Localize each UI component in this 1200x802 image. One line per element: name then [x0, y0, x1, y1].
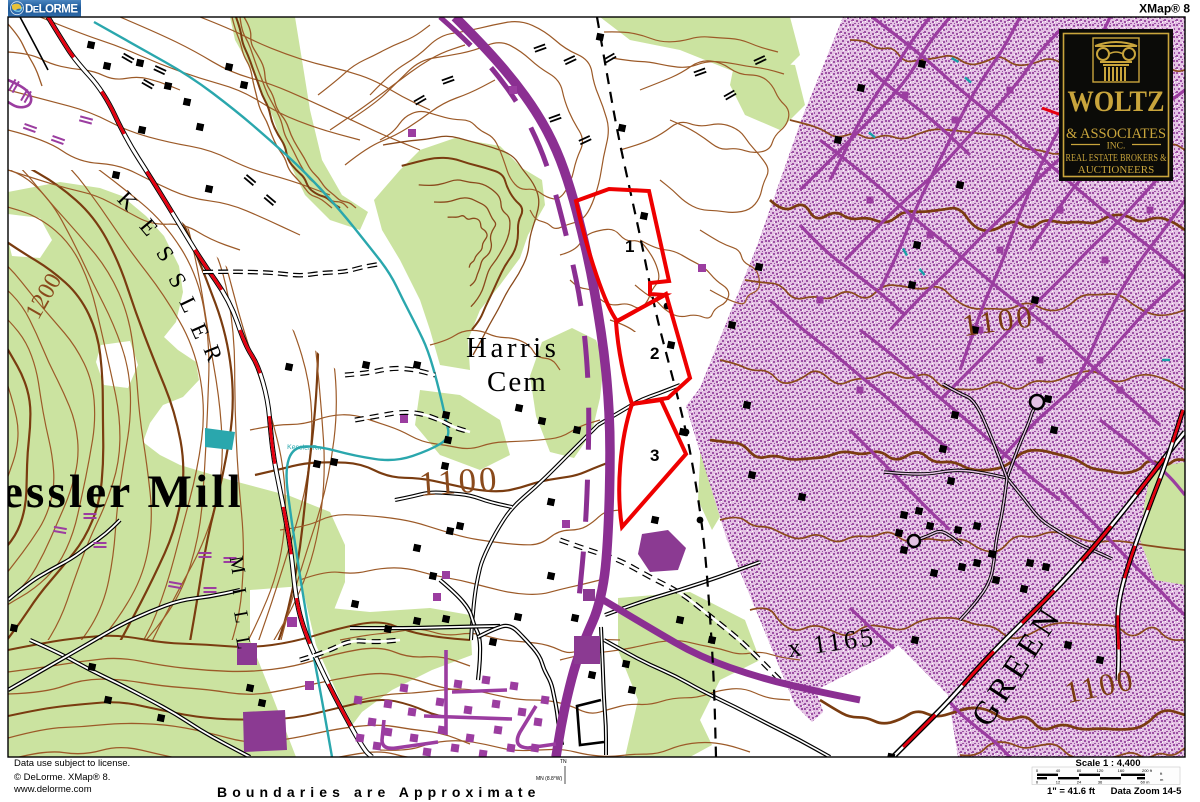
svg-text:40: 40: [1056, 768, 1061, 773]
svg-text:36: 36: [1098, 780, 1103, 785]
svg-text:80: 80: [1077, 768, 1082, 773]
svg-text:& ASSOCIATES: & ASSOCIATES: [1066, 126, 1166, 142]
svg-text:1: 1: [625, 237, 634, 256]
svg-text:120: 120: [1097, 768, 1104, 773]
svg-text:160: 160: [1118, 768, 1125, 773]
svg-text:essler Mill: essler Mill: [2, 466, 244, 518]
svg-text:AUCTIONEERS: AUCTIONEERS: [1078, 164, 1154, 176]
svg-text:60 m: 60 m: [1141, 780, 1151, 785]
svg-text:REAL ESTATE BROKERS &: REAL ESTATE BROKERS &: [1066, 153, 1167, 164]
svg-text:2: 2: [650, 344, 659, 363]
svg-text:INC.: INC.: [1107, 142, 1126, 152]
svg-text:Data use subject to license.: Data use subject to license.: [14, 758, 130, 769]
svg-text:Boundaries are Approximate: Boundaries are Approximate: [217, 784, 540, 800]
svg-text:XMap® 8: XMap® 8: [1139, 2, 1190, 16]
svg-text:1" = 41.6 ft: 1" = 41.6 ft: [1047, 786, 1096, 797]
svg-text:24: 24: [1077, 780, 1082, 785]
svg-text:200 ft: 200 ft: [1142, 768, 1153, 773]
svg-text:DELORME: DELORME: [25, 4, 78, 16]
svg-text:TN: TN: [560, 759, 567, 765]
svg-text:www.delorme.com: www.delorme.com: [13, 784, 92, 795]
svg-text:12: 12: [1056, 780, 1061, 785]
svg-text:MN (8.8°W): MN (8.8°W): [536, 776, 562, 782]
svg-text:Kessler Rn: Kessler Rn: [287, 444, 322, 452]
svg-text:Cem: Cem: [487, 366, 548, 398]
svg-text:© DeLorme. XMap® 8.: © DeLorme. XMap® 8.: [14, 772, 110, 783]
svg-text:Harris: Harris: [466, 332, 559, 364]
svg-text:3: 3: [650, 446, 659, 465]
svg-text:WOLTZ: WOLTZ: [1068, 85, 1165, 118]
svg-text:1100: 1100: [418, 459, 501, 504]
svg-text:Data Zoom 14-5: Data Zoom 14-5: [1111, 786, 1182, 797]
